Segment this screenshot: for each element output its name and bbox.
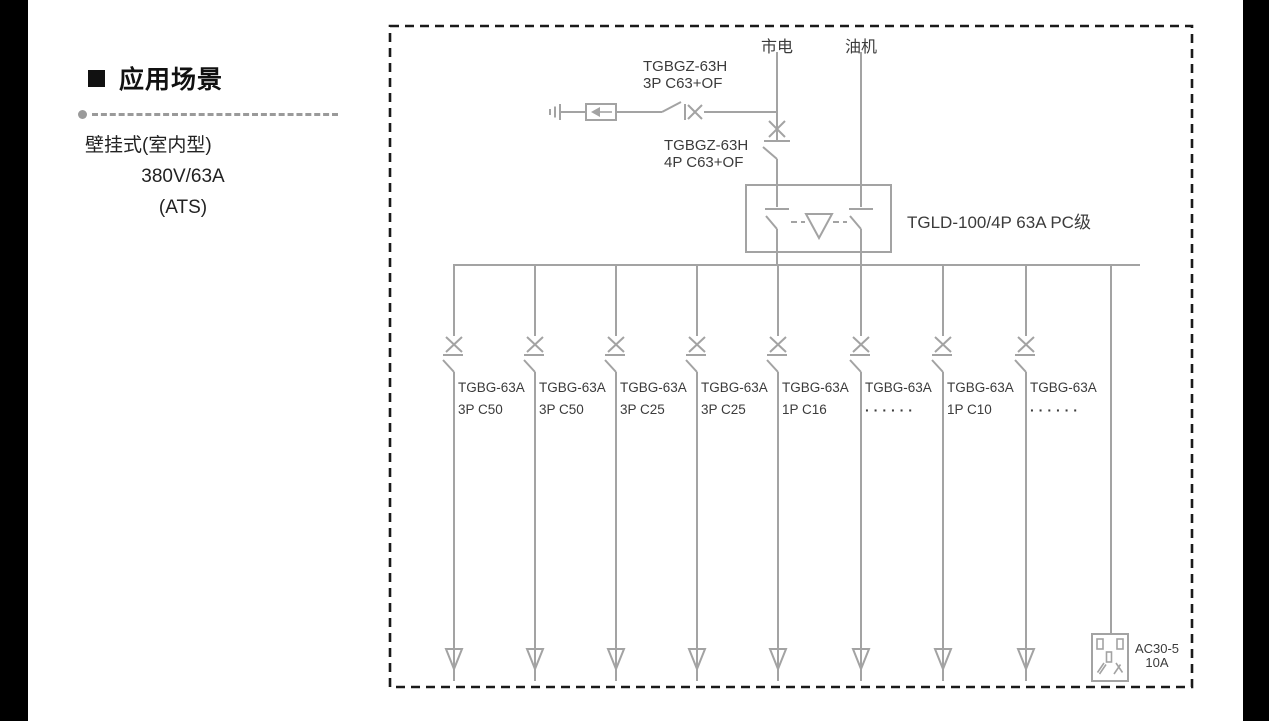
branch-label-1: TGBG-63A 3P C50 [458,377,525,421]
branch-circuit-5 [767,266,787,681]
branch-circuit-6 [850,266,870,681]
branch-circuit-8 [1015,266,1035,681]
diagram-dashed-border [390,26,1192,687]
branch-circuit-3 [605,266,625,681]
branch-label-4: TGBG-63A 3P C25 [701,377,768,421]
branch-circuit-4 [686,266,706,681]
mains-feeder-line [763,52,790,185]
ats-switch-box [746,185,891,265]
socket-rating-label: AC30-5 10A [1132,642,1182,670]
spd-branch [550,102,777,120]
ats-interlock-triangle-icon [806,214,832,238]
main-breaker-label: TGBGZ-63H 4P C63+OF [664,137,748,171]
generator-source-label: 油机 [831,33,891,57]
branch-circuit-2 [524,266,544,681]
branch-label-5: TGBG-63A 1P C16 [782,377,849,421]
branch-circuit-1 [443,266,463,681]
branch-label-6: TGBG-63A ······ [865,377,932,421]
socket-branch [1092,266,1128,681]
ats-model-label: TGLD-100/4P 63A PC级 [907,208,1091,233]
spd-arrow-icon [591,107,600,117]
spd-breaker-label: TGBGZ-63H 3P C63+OF [643,58,727,92]
single-line-diagram [0,0,1269,721]
socket-icon [1092,634,1128,681]
switch-blade-icon [662,102,681,112]
mains-source-label: 市电 [747,33,807,57]
branch-circuit-7 [932,266,952,681]
branch-label-3: TGBG-63A 3P C25 [620,377,687,421]
breaker-x-icon [688,105,702,119]
branch-label-7: TGBG-63A 1P C10 [947,377,1014,421]
branch-label-8: TGBG-63A ······ [1030,377,1097,421]
earth-ground-icon [550,104,560,120]
branch-label-2: TGBG-63A 3P C50 [539,377,606,421]
